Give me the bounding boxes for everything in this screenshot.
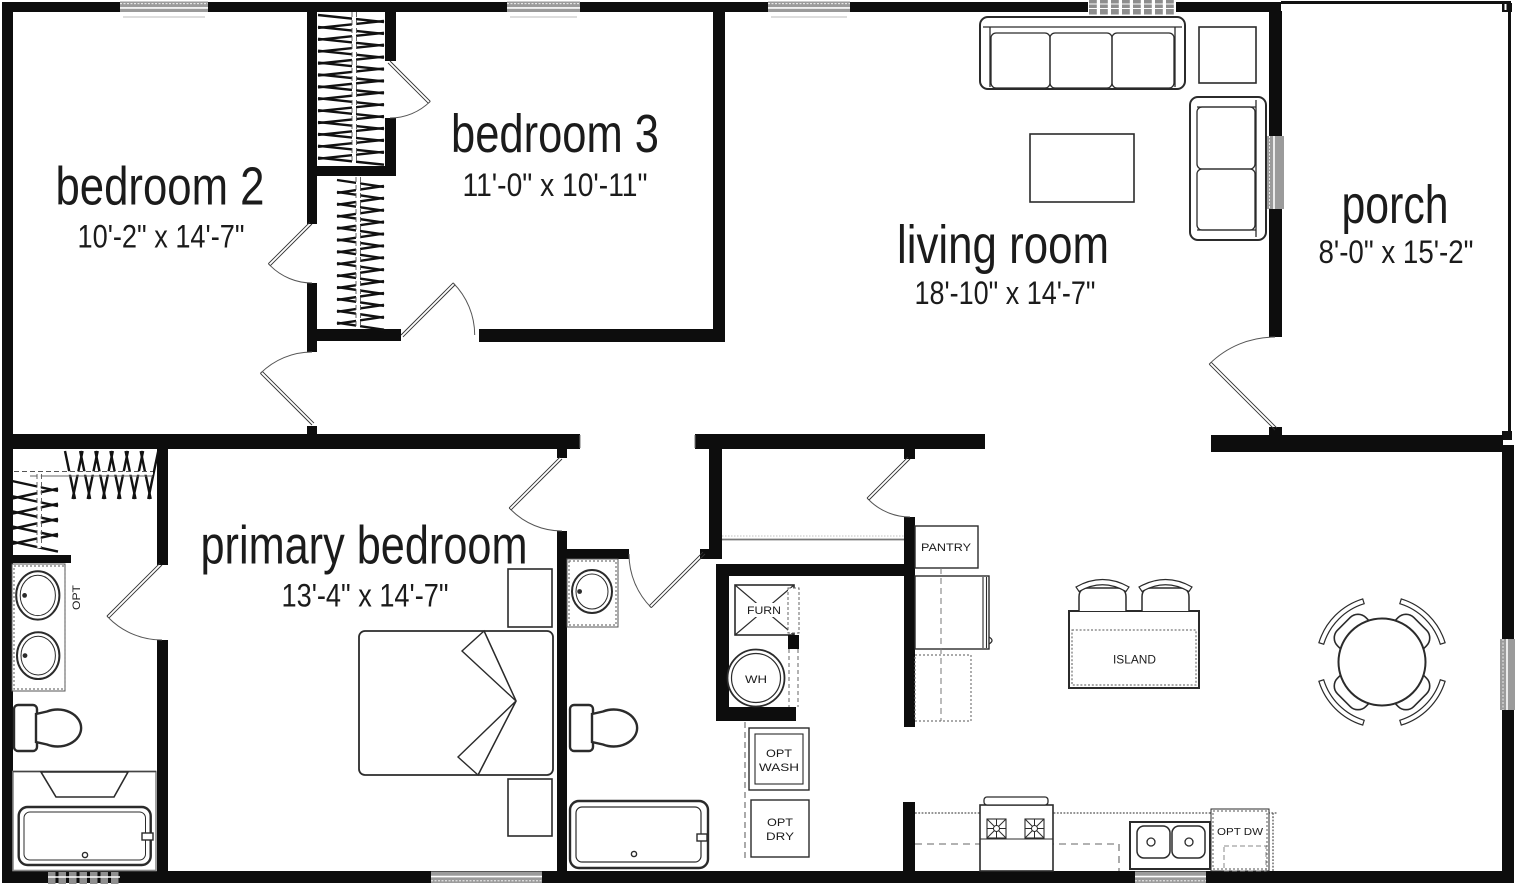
svg-text:OPT DW: OPT DW xyxy=(1217,826,1263,838)
svg-text:ISLAND: ISLAND xyxy=(1113,653,1156,667)
svg-text:8'-0" x 15'-2": 8'-0" x 15'-2" xyxy=(1319,234,1474,270)
svg-text:13'-4" x 14'-7": 13'-4" x 14'-7" xyxy=(282,577,449,613)
svg-text:WH: WH xyxy=(745,674,767,686)
svg-text:DRY: DRY xyxy=(766,831,795,843)
svg-text:WASH: WASH xyxy=(759,762,799,774)
svg-text:PANTRY: PANTRY xyxy=(921,542,972,554)
svg-text:porch: porch xyxy=(1342,175,1449,235)
svg-text:10'-2" x 14'-7": 10'-2" x 14'-7" xyxy=(78,218,245,254)
svg-text:bedroom 2: bedroom 2 xyxy=(56,157,265,217)
svg-text:OPT: OPT xyxy=(71,585,83,610)
svg-text:living room: living room xyxy=(897,215,1109,275)
svg-text:18'-10" x 14'-7": 18'-10" x 14'-7" xyxy=(915,275,1096,311)
svg-text:primary bedroom: primary bedroom xyxy=(201,516,528,576)
svg-text:FURN: FURN xyxy=(747,605,781,617)
svg-text:bedroom 3: bedroom 3 xyxy=(451,104,659,164)
svg-text:11'-0" x 10'-11": 11'-0" x 10'-11" xyxy=(463,167,648,203)
svg-text:OPT: OPT xyxy=(766,748,792,760)
svg-text:OPT: OPT xyxy=(767,817,793,829)
